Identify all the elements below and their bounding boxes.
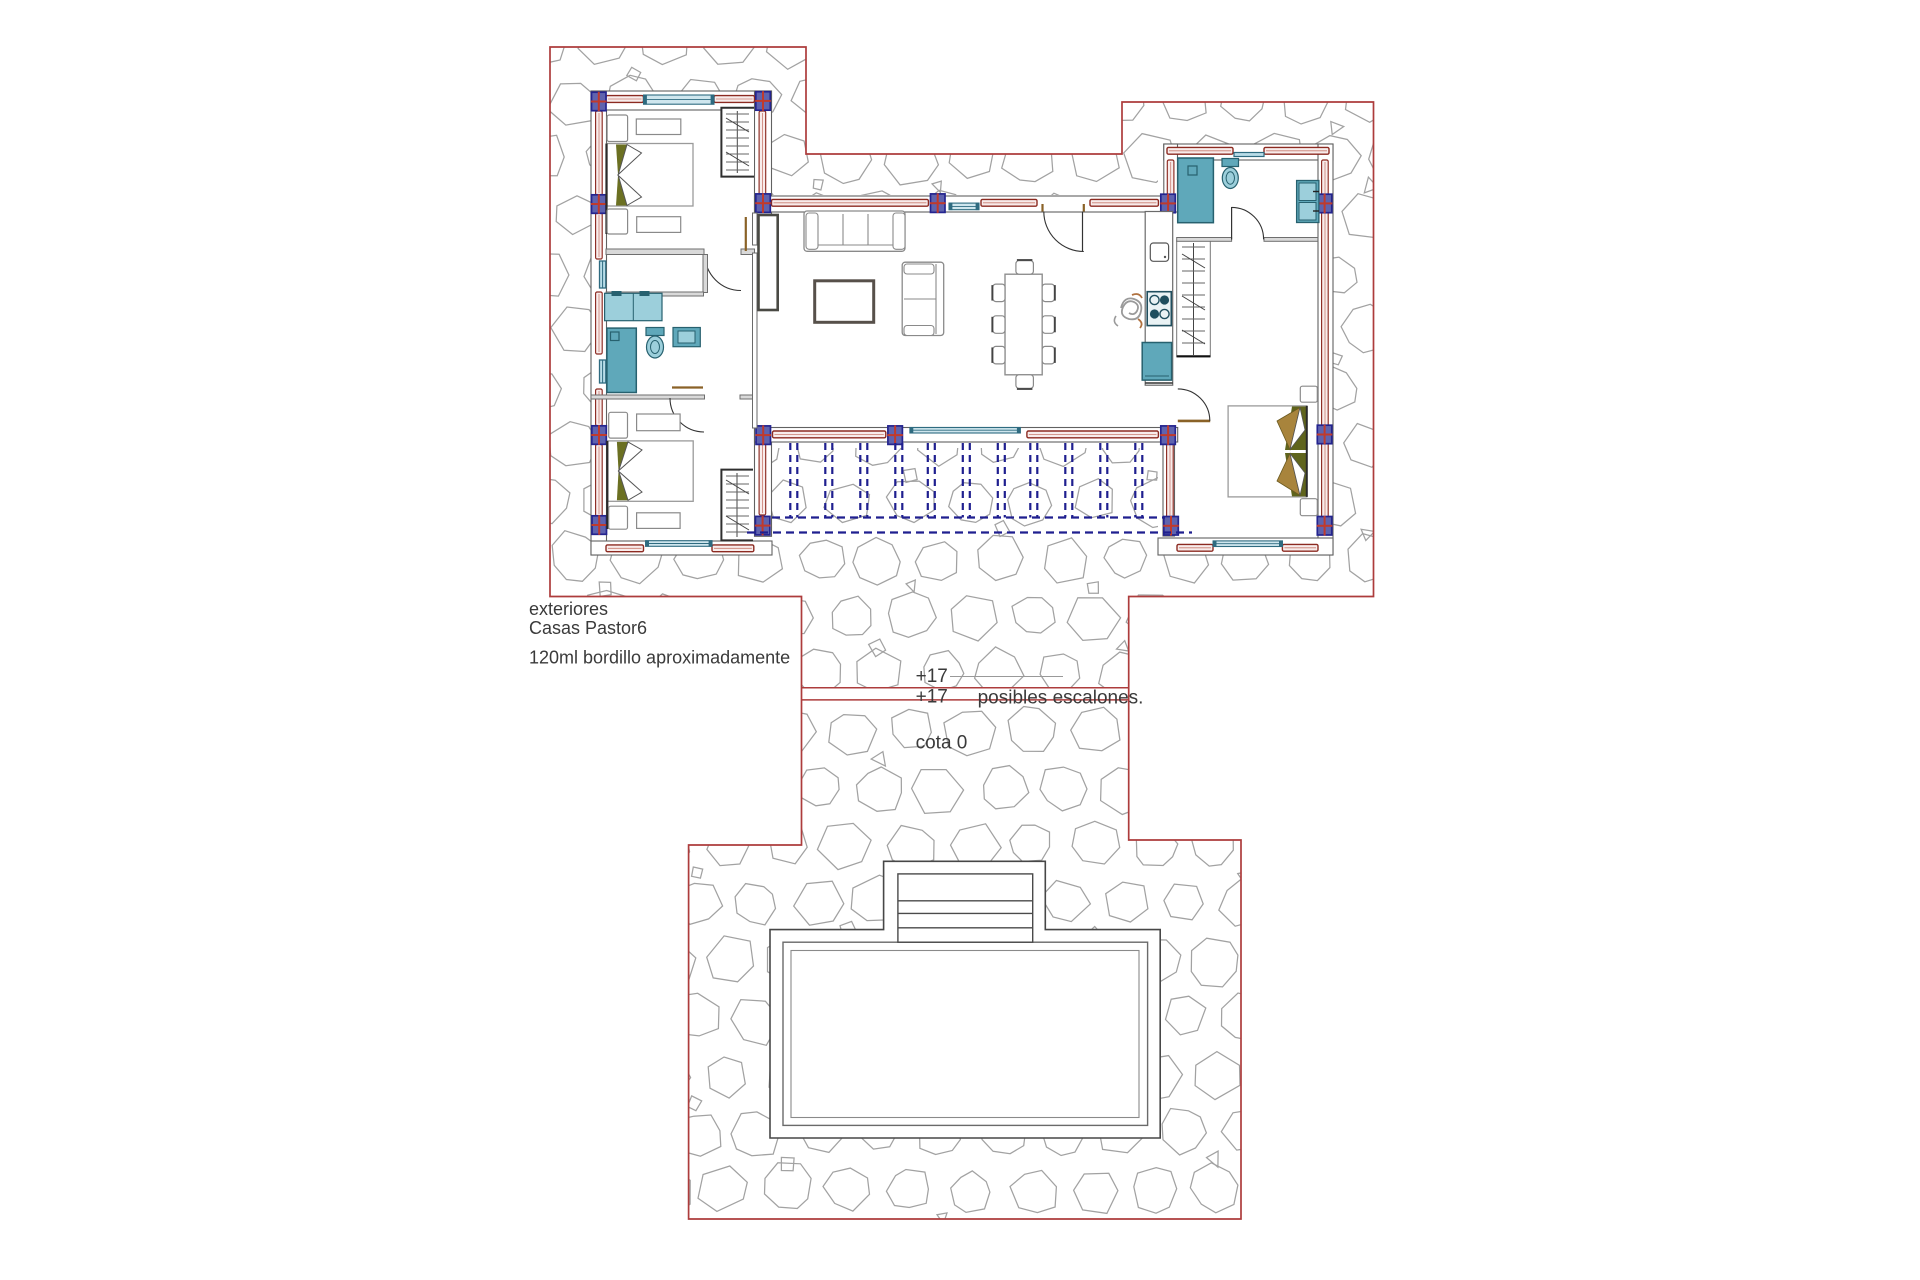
- svg-text:posibles escalones.: posibles escalones.: [978, 688, 1144, 709]
- svg-text:+17: +17: [916, 687, 948, 708]
- svg-text:exteriores: exteriores: [529, 599, 608, 619]
- svg-text:+17: +17: [916, 666, 948, 687]
- svg-text:Casas Pastor6: Casas Pastor6: [529, 618, 647, 638]
- svg-text:120ml bordillo aproximadamente: 120ml bordillo aproximadamente: [529, 648, 790, 668]
- svg-text:cota 0: cota 0: [916, 733, 968, 754]
